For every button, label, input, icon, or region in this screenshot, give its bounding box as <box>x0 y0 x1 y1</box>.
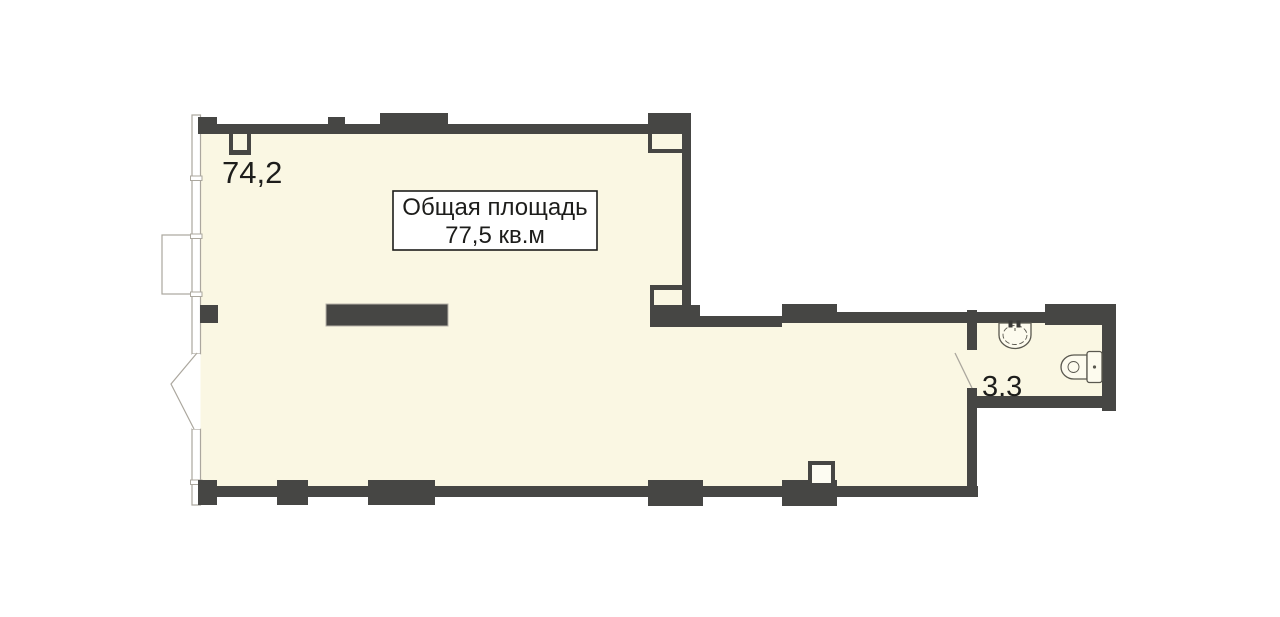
wall-segment <box>682 113 691 327</box>
wall-corner-block <box>650 305 700 327</box>
wall-pier <box>328 117 345 134</box>
bathroom-area-label: 3.3 <box>982 371 1022 403</box>
wall-pier <box>198 117 217 134</box>
wall-segment <box>700 316 782 327</box>
shaft-notch-frame <box>650 285 682 290</box>
shaft-notch-frame <box>650 285 654 305</box>
sink-icon <box>999 321 1031 349</box>
window-mullion <box>191 176 203 181</box>
wall-marker-top-inner <box>233 134 247 150</box>
window-mullion <box>191 234 203 239</box>
total-area-title: Общая площадь <box>402 194 587 221</box>
wall-pier <box>782 304 837 323</box>
wall-segment <box>1102 304 1116 411</box>
toilet-bowl <box>1061 355 1087 379</box>
wall-marker-bottom-inner <box>812 465 831 483</box>
toilet-tank-button <box>1093 365 1096 368</box>
wall-segment <box>837 312 967 323</box>
total-area-value: 77,5 кв.м <box>445 222 545 249</box>
bathroom-partition-lower <box>967 388 977 497</box>
shaft-notch-frame <box>648 149 682 153</box>
toilet-icon <box>1061 352 1102 383</box>
wall-pier <box>380 113 448 134</box>
interior-column <box>200 305 218 323</box>
bay-window <box>162 235 196 294</box>
main-room-area-label: 74,2 <box>222 155 282 190</box>
floor-plan-drawing: 74,2 Общая площадь 77,5 кв.м 3.3 <box>0 0 1280 617</box>
wall-pier <box>368 480 435 505</box>
bathroom-partition-upper <box>967 310 977 350</box>
window-mullion <box>191 292 203 297</box>
interior-partition-bar <box>326 304 448 326</box>
sink-tap <box>1017 321 1021 328</box>
wall-pier <box>198 480 217 505</box>
wall-segment <box>198 486 978 497</box>
wall-pier <box>277 480 308 505</box>
sink-tap <box>1009 321 1013 328</box>
wall-pier <box>648 480 703 506</box>
floor-plan-page: 74,2 Общая площадь 77,5 кв.м 3.3 <box>0 0 1280 617</box>
